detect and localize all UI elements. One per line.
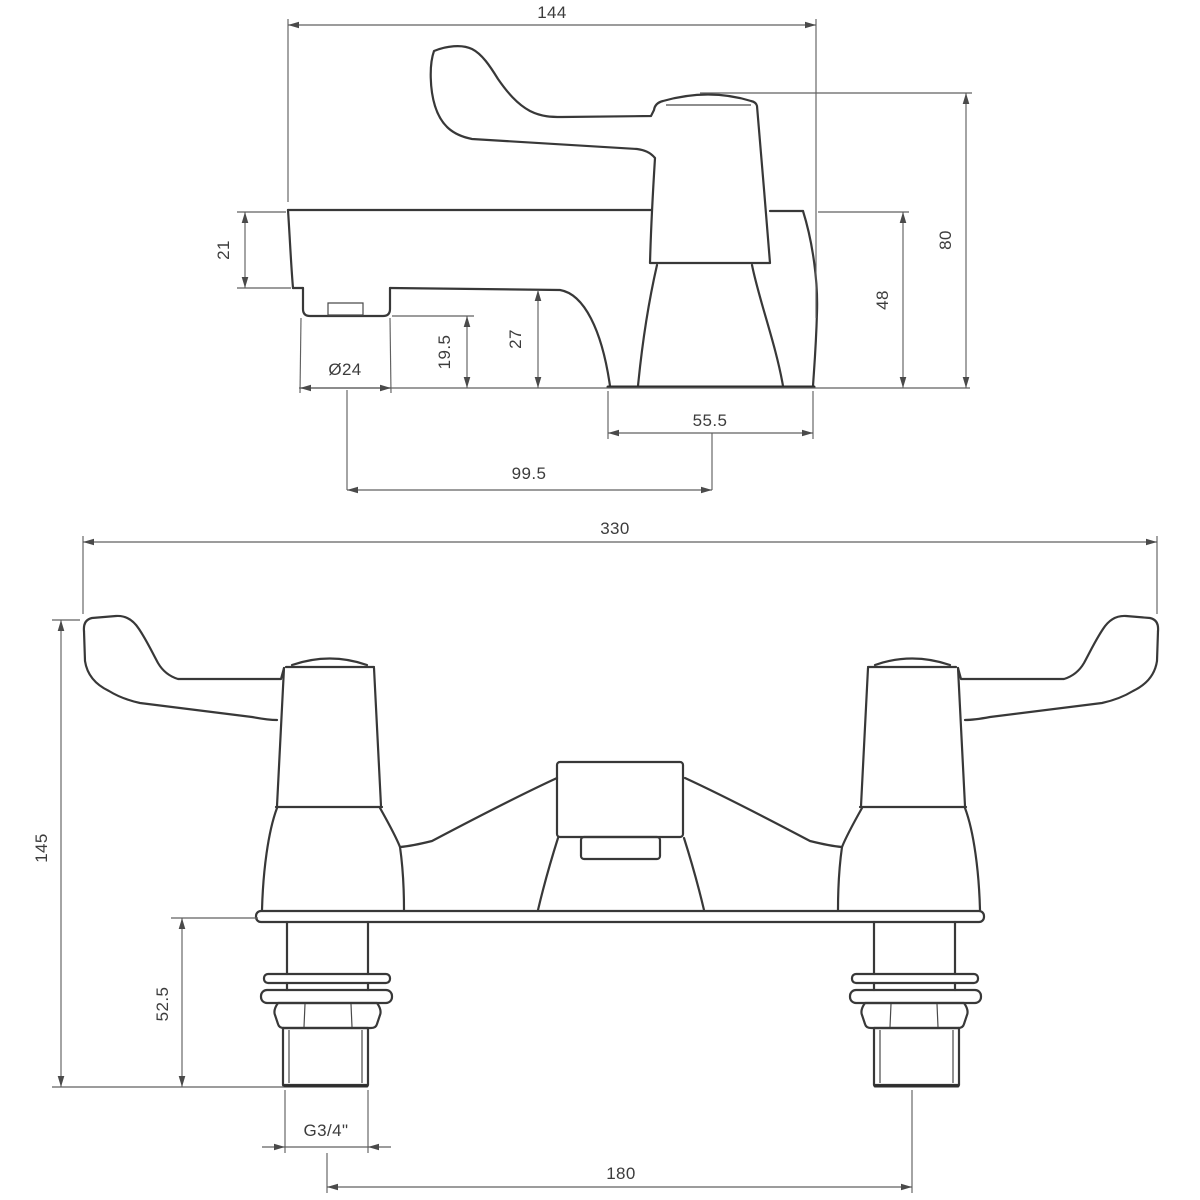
dim-label-spout-tip-to-base: 19.5 <box>435 335 454 370</box>
front-cap-outline <box>276 667 382 807</box>
side-valve-skirt-right <box>752 265 783 386</box>
extension-line <box>300 318 301 393</box>
front-valve-skirt-left <box>262 808 277 910</box>
front-cap-dome <box>292 659 367 666</box>
front-valve-skirt-right <box>380 808 404 910</box>
side-spout-nozzle <box>303 288 390 316</box>
front-right-assembly <box>684 616 1158 1086</box>
extension-line <box>390 318 391 393</box>
dim-label-overall-height: 80 <box>936 230 955 250</box>
front-backnut <box>274 1003 380 1028</box>
dim-label-base-depth: 55.5 <box>693 411 728 430</box>
dim-label-thread-size: G3/4" <box>304 1121 349 1140</box>
front-body-sweep <box>400 778 557 847</box>
front-threaded-tail <box>283 1028 368 1085</box>
dim-label-front-height: 145 <box>32 833 51 863</box>
side-handle-and-valve-outline <box>431 46 770 263</box>
front-body-inner-slant <box>538 838 558 910</box>
front-washer-thin <box>264 974 390 983</box>
front-washer-thick <box>261 990 392 1003</box>
dim-label-hole-centres: 180 <box>606 1164 636 1183</box>
side-spout-aerator <box>328 303 363 315</box>
front-thread-lines <box>289 1030 362 1083</box>
front-deck-plate <box>256 911 984 922</box>
front-handle-underside <box>84 631 277 720</box>
front-view: 330 145 52.5 G3/4" 180 <box>32 519 1158 1193</box>
technical-drawing-page: 144 80 48 21 Ø24 19.5 27 55.5 <box>0 0 1200 1200</box>
dim-label-handle-to-base: 48 <box>873 290 892 310</box>
front-view-dimensions: 330 145 52.5 G3/4" 180 <box>32 519 1157 1193</box>
technical-drawing: 144 80 48 21 Ø24 19.5 27 55.5 <box>0 0 1200 1200</box>
dim-label-spout-body-height: 21 <box>214 240 233 260</box>
front-tail-pipe <box>287 922 368 974</box>
front-spout-outlet <box>581 837 660 859</box>
dim-label-underside-to-base: 27 <box>506 329 525 349</box>
side-view: 144 80 48 21 Ø24 19.5 27 55.5 <box>214 3 972 490</box>
front-spout-block <box>557 762 683 837</box>
dim-label-overall-length: 144 <box>537 3 567 22</box>
side-body-rear-edge <box>803 211 817 386</box>
front-handle-top <box>84 616 284 679</box>
front-backnut-facets <box>304 1004 352 1027</box>
side-valve-skirt-left <box>638 265 657 386</box>
side-spout-front-edge <box>288 210 293 288</box>
side-spout-underside <box>390 288 610 386</box>
dim-label-spout-reach: 99.5 <box>512 464 547 483</box>
dim-label-below-deck: 52.5 <box>153 987 172 1022</box>
dim-label-overall-width: 330 <box>600 519 630 538</box>
dim-label-spout-diameter: Ø24 <box>328 360 361 379</box>
side-view-dimensions: 144 80 48 21 Ø24 19.5 27 55.5 <box>214 3 972 490</box>
